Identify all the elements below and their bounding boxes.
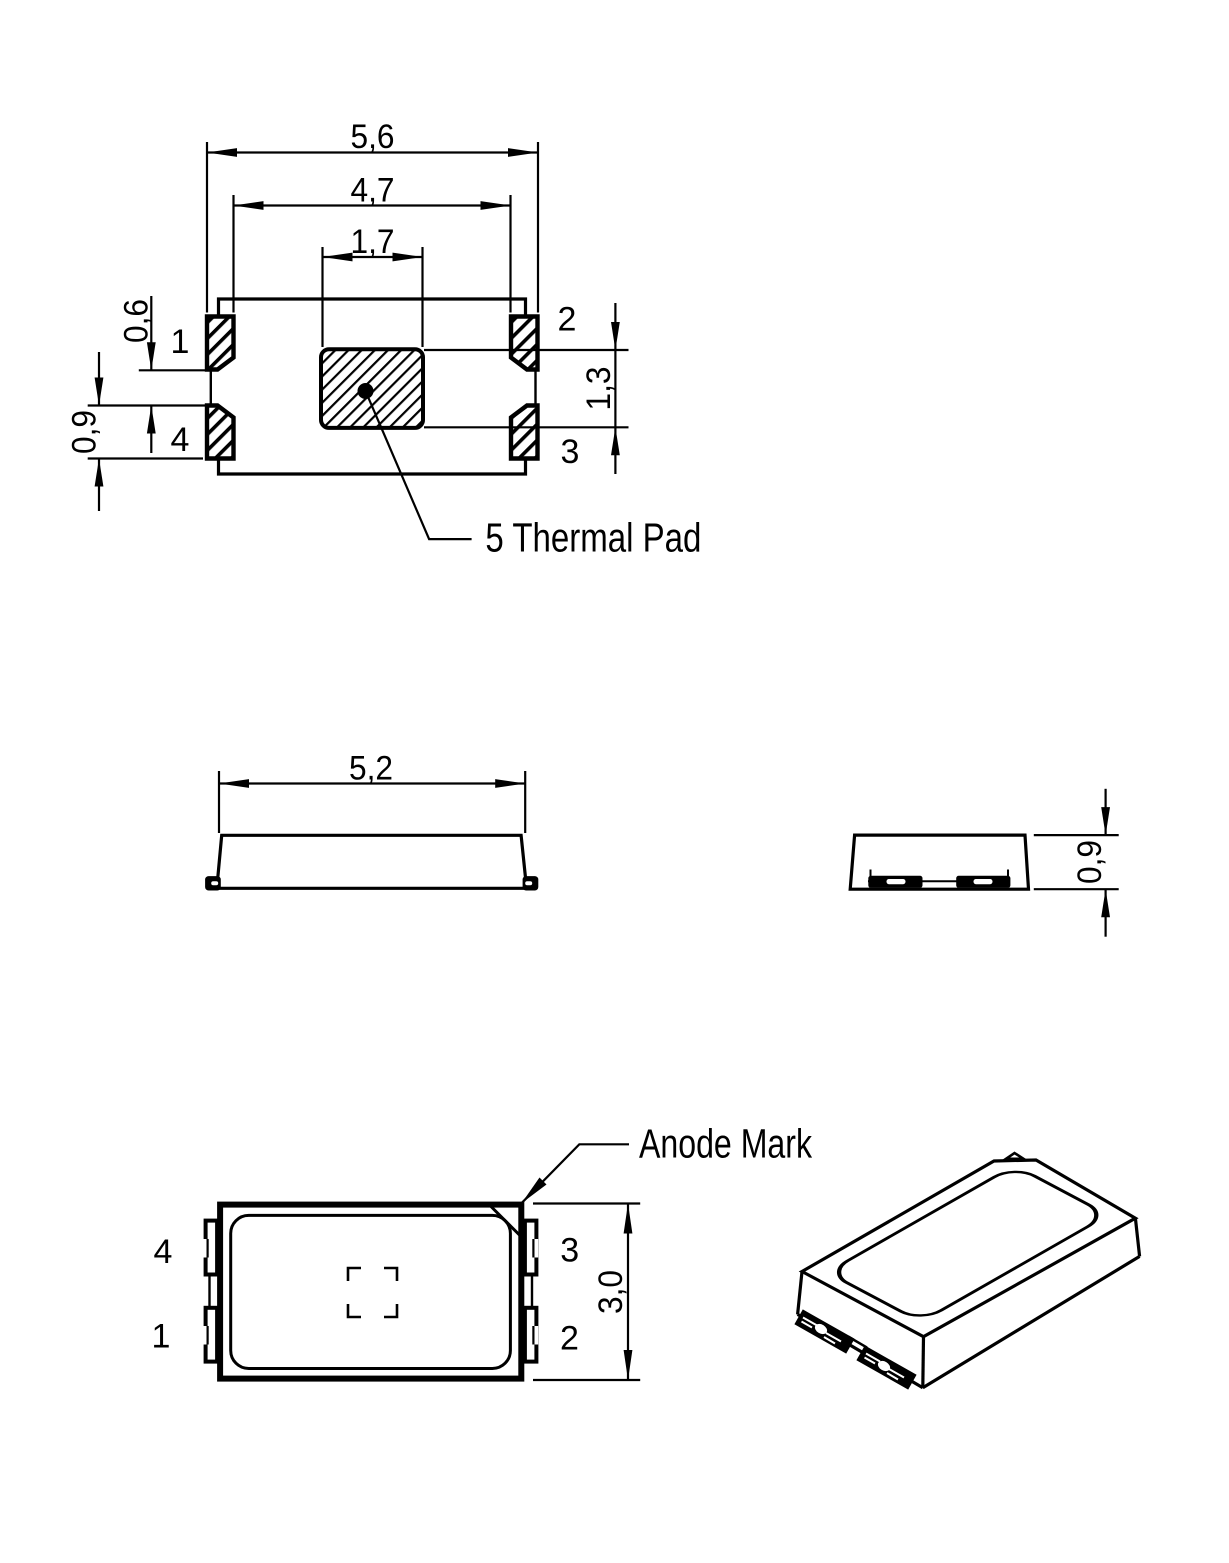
svg-text:1: 1 bbox=[171, 323, 190, 361]
svg-text:3: 3 bbox=[561, 433, 580, 471]
svg-text:5 Thermal Pad: 5 Thermal Pad bbox=[485, 514, 701, 560]
svg-text:2: 2 bbox=[558, 301, 577, 339]
svg-text:0,9: 0,9 bbox=[1071, 840, 1109, 884]
svg-text:Anode Mark: Anode Mark bbox=[639, 1120, 812, 1166]
svg-text:3: 3 bbox=[560, 1231, 579, 1269]
svg-text:1,3: 1,3 bbox=[580, 367, 618, 411]
svg-text:1: 1 bbox=[152, 1317, 171, 1355]
svg-text:2: 2 bbox=[560, 1320, 579, 1358]
svg-text:3,0: 3,0 bbox=[592, 1270, 630, 1314]
svg-text:4,7: 4,7 bbox=[351, 172, 395, 210]
svg-text:5,6: 5,6 bbox=[351, 118, 395, 156]
svg-text:1,7: 1,7 bbox=[351, 223, 395, 261]
svg-text:4: 4 bbox=[154, 1233, 173, 1271]
svg-text:0,9: 0,9 bbox=[66, 410, 104, 454]
svg-text:5,2: 5,2 bbox=[349, 750, 393, 788]
svg-text:4: 4 bbox=[171, 421, 190, 459]
svg-text:0,6: 0,6 bbox=[118, 299, 156, 343]
